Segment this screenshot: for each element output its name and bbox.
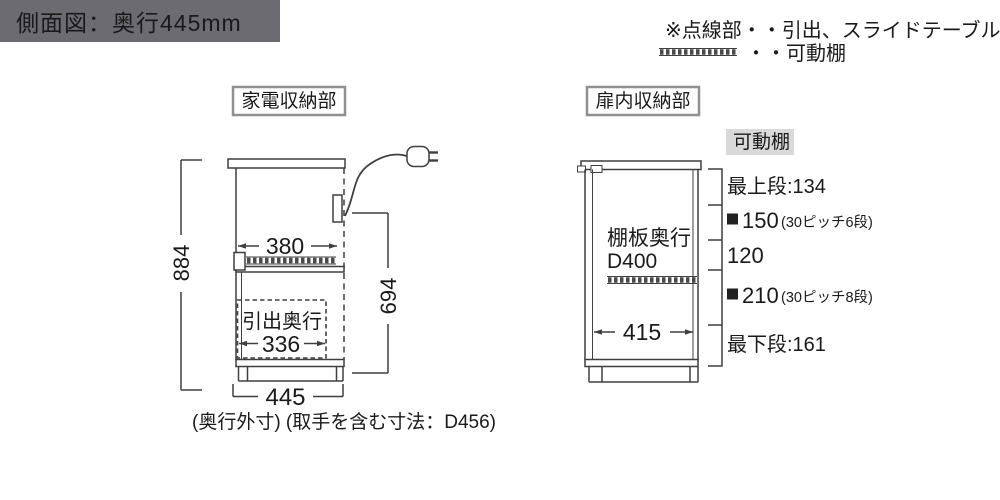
dim-415-value: 415 [623, 319, 661, 345]
dim-380-value: 380 [266, 233, 304, 259]
section-label-bottom: 最下段:161 [727, 333, 826, 356]
dim-884-value: 884 [169, 245, 194, 282]
movable-shelf-icon [607, 277, 697, 284]
legend: ※点線部・・引出、スライドテーブル ・・可動棚 [659, 18, 1000, 65]
section-note-150: (30ピッチ6段) [781, 214, 873, 231]
left-cabinet-top-panel [228, 159, 345, 168]
shelf-depth-value: D400 [607, 250, 657, 273]
section-label-150: 150 [742, 208, 779, 233]
dim-445-value: 445 [265, 384, 305, 411]
dim-415: 415 [594, 319, 693, 345]
legend-line1: ※点線部・・引出、スライドテーブル [665, 18, 1000, 42]
section-label-120: 120 [727, 243, 764, 268]
legend-line2: ・・可動棚 [746, 42, 846, 65]
dim-694: 694 [352, 213, 401, 373]
section-bracket [708, 169, 722, 366]
depth-caption: (奥行外寸) (取手を含む寸法：D456) [192, 411, 496, 433]
section-label-210: 210 [742, 283, 779, 308]
right-cabinet-bottom-board [585, 360, 698, 367]
section-note-210: (30ピッチ8段) [781, 289, 873, 306]
movable-shelf-tag: 可動棚 [726, 129, 794, 155]
dim-694-value: 694 [376, 278, 401, 315]
right-cabinet-plinth [589, 367, 698, 383]
dim-336: 336 [239, 331, 325, 357]
side-view-diagram: 側面図：奥行445mm ※点線部・・引出、スライドテーブル ・・可動棚 家電収納… [0, 0, 1000, 500]
shelf-square-icon [727, 214, 738, 225]
door-section-label-text: 扉内収納部 [595, 90, 690, 112]
fixed-shelf [236, 267, 344, 273]
handle-icon [333, 195, 342, 222]
section-label-top: 最上段:134 [727, 175, 826, 198]
door-section-label: 扉内収納部 [587, 87, 699, 115]
right-cabinet-drawing: 棚板奥行 D400 415 [578, 161, 723, 382]
page-title: 側面図：奥行445mm [16, 10, 242, 36]
dim-336-value: 336 [262, 331, 300, 357]
title-bar: 側面図：奥行445mm [0, 0, 280, 42]
section-labels: 最上段:134 150 (30ピッチ6段) 120 210 (30ピッチ8段) … [727, 175, 873, 356]
power-cord [345, 154, 407, 216]
appliance-section-label-text: 家電収納部 [241, 90, 336, 112]
power-plug-icon [407, 147, 438, 167]
dim-884: 884 [169, 160, 202, 390]
appliance-section-label: 家電収納部 [233, 87, 345, 115]
legend-hatched-bar-icon [659, 49, 737, 56]
dim-380: 380 [238, 233, 337, 259]
shelf-depth-label: 棚板奥行 [607, 227, 691, 250]
left-cabinet-bottom-board [236, 360, 344, 367]
shelf-square-icon [727, 289, 738, 300]
dim-445: 445 [233, 384, 343, 411]
left-cabinet-plinth [239, 367, 344, 382]
drawer-depth-label: 引出奥行 [242, 310, 322, 333]
left-cabinet-drawing: 引出奥行 336 380 [169, 147, 496, 434]
movable-shelf-tag-text: 可動棚 [733, 131, 790, 153]
